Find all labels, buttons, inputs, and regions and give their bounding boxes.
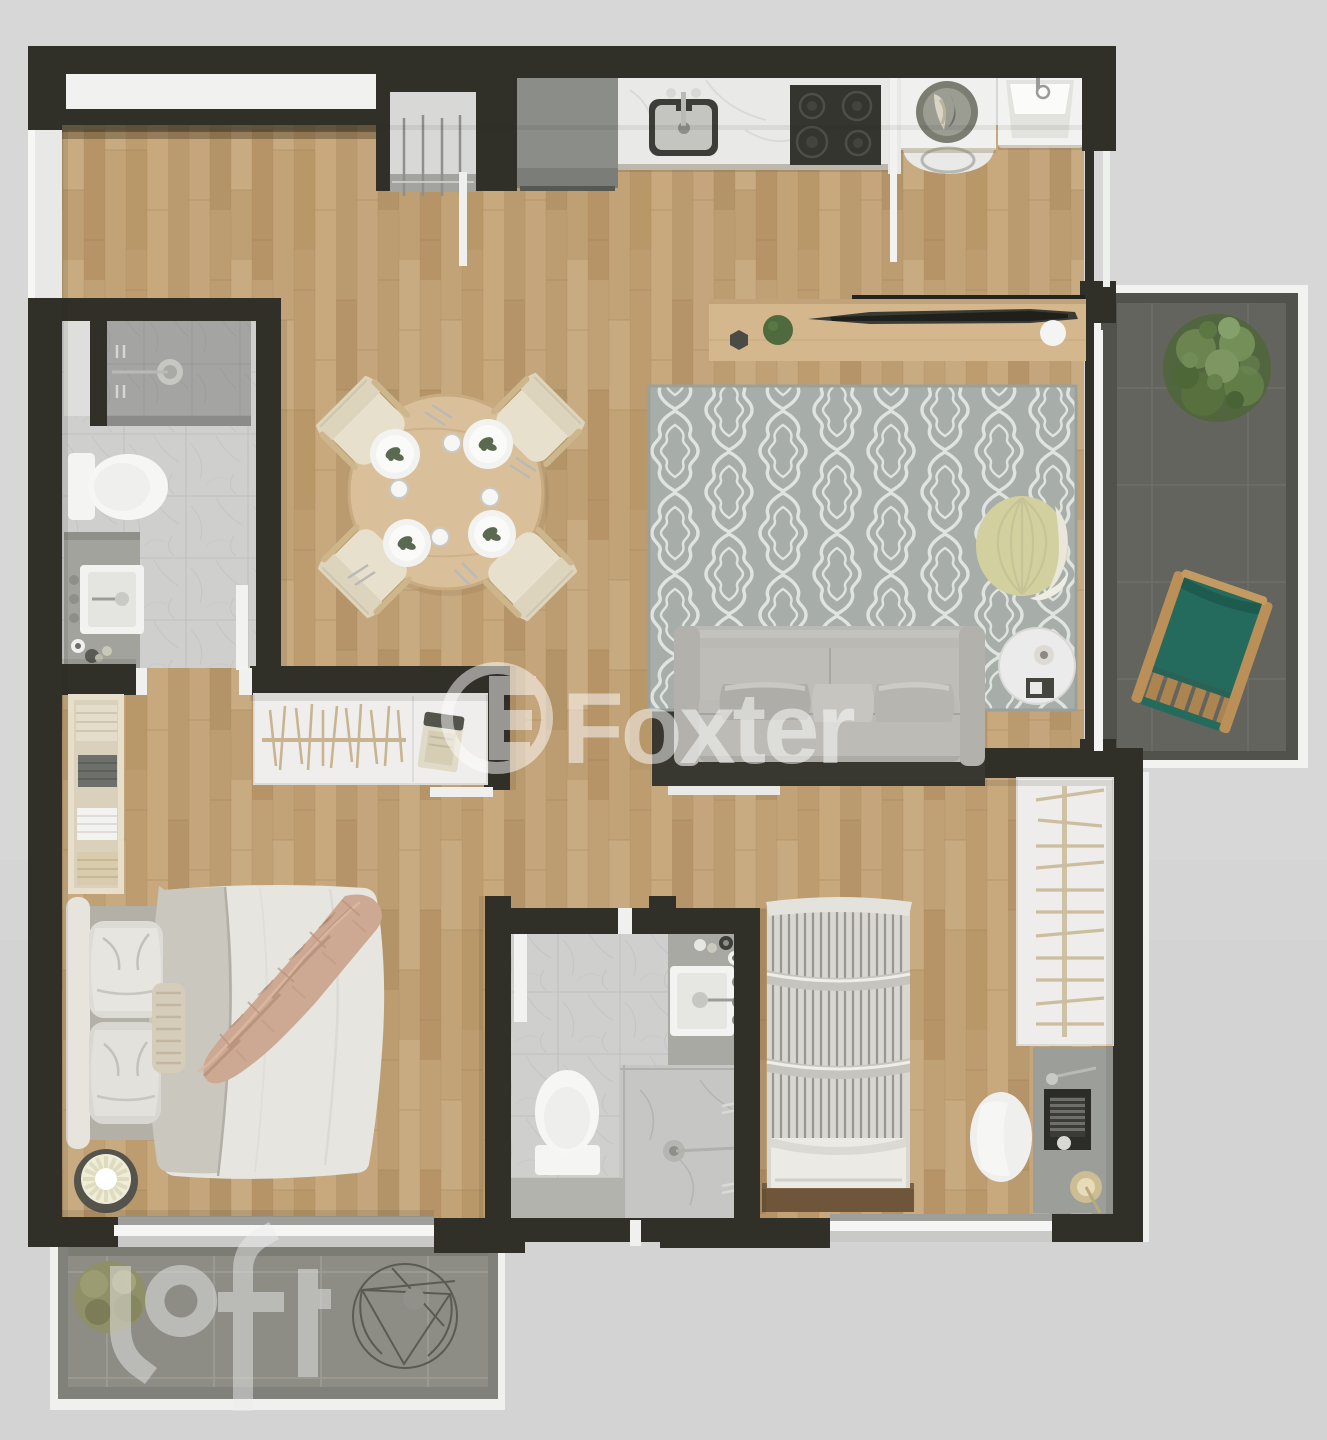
svg-text:Foxter: Foxter xyxy=(562,673,854,785)
